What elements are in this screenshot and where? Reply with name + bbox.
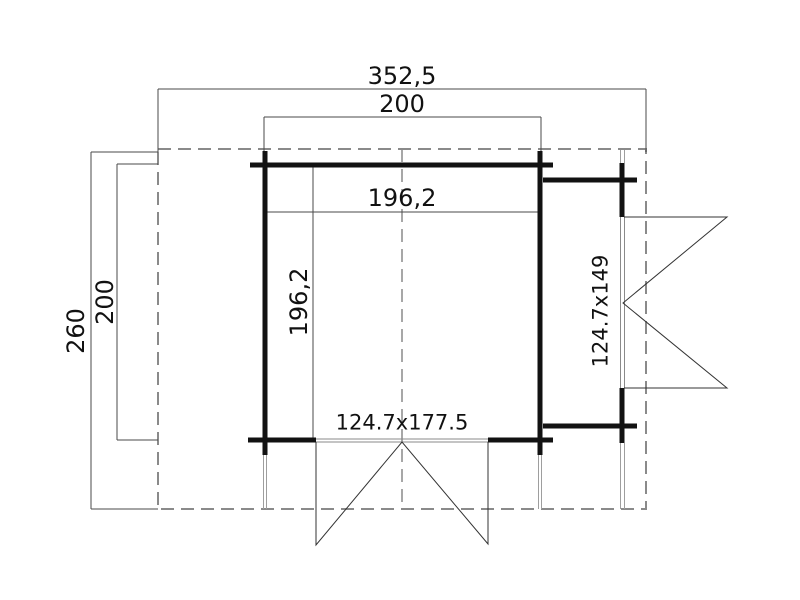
post-stub-lines [264,150,625,509]
dim-inner-width-label: 196,2 [368,186,437,210]
dimension-lines [91,89,646,509]
dim-outer-width-label: 200 [379,92,425,116]
floor-plan-canvas: 352,5 200 196,2 196,2 260 200 124.7x177.… [0,0,800,600]
dim-outer-depth-label: 200 [93,279,117,325]
door-frame-lines [316,217,625,442]
side-door-swing [623,217,727,388]
side-door-size-label: 124.7x149 [591,255,612,368]
front-door-size-label: 124.7x177.5 [336,413,469,434]
dim-overall-width-label: 352,5 [368,64,437,88]
dim-inner-depth-label: 196,2 [287,268,311,337]
dim-overall-depth-label: 260 [64,308,88,354]
